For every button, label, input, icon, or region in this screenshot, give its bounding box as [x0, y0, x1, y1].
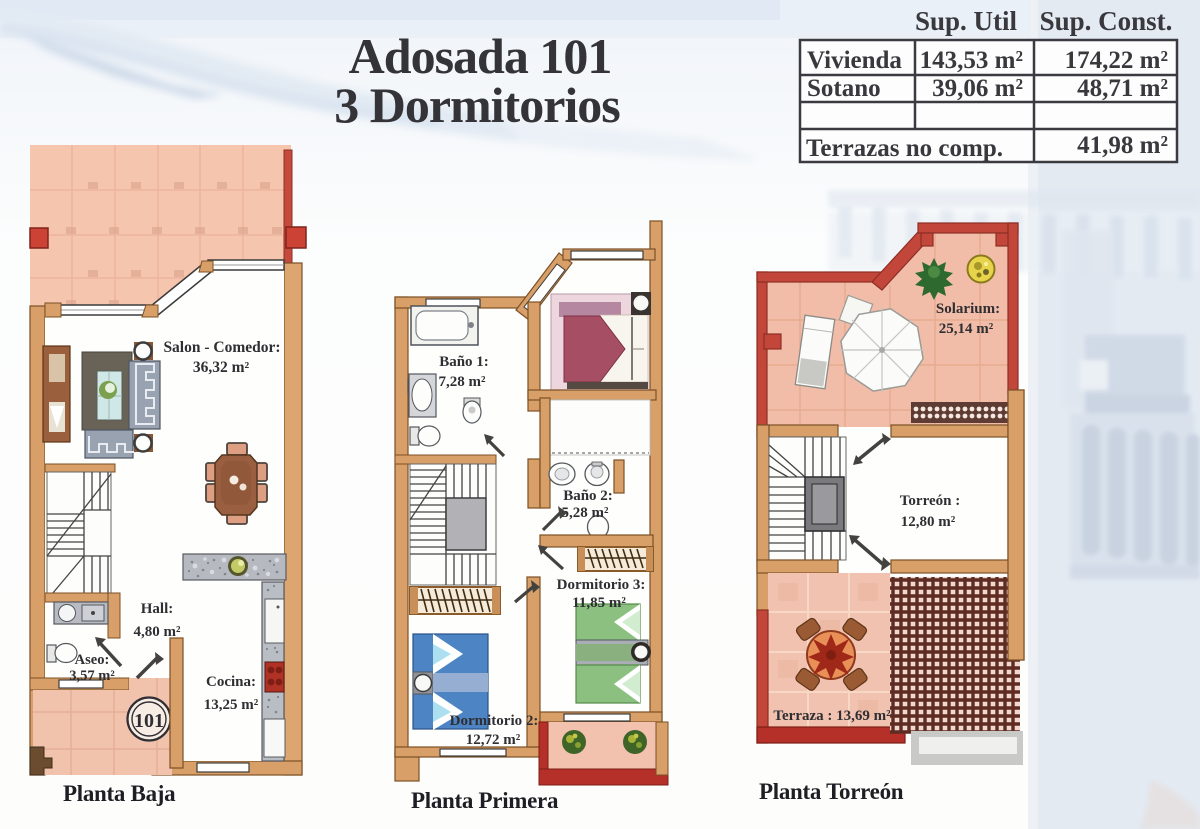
svg-text:Baño 1:: Baño 1: — [439, 354, 489, 370]
svg-text:7,28 m²: 7,28 m² — [439, 374, 486, 390]
svg-text:Terrazas no comp.: Terrazas no comp. — [806, 135, 1003, 162]
svg-text:Dormitorio 2:: Dormitorio 2: — [450, 713, 539, 729]
svg-text:Solarium:: Solarium: — [936, 301, 1000, 317]
svg-text:3,57 m²: 3,57 m² — [69, 668, 114, 684]
svg-text:Sotano: Sotano — [807, 75, 881, 102]
svg-text:12,72 m²: 12,72 m² — [466, 732, 521, 748]
svg-text:36,32 m²: 36,32 m² — [193, 359, 250, 376]
svg-text:Planta Torreón: Planta Torreón — [759, 779, 904, 804]
svg-text:48,71 m²: 48,71 m² — [1077, 75, 1168, 102]
svg-text:174,22 m²: 174,22 m² — [1065, 47, 1168, 74]
svg-text:Hall:: Hall: — [141, 601, 174, 617]
svg-text:Cocina:: Cocina: — [206, 674, 256, 690]
svg-text:3 Dormitorios: 3 Dormitorios — [334, 77, 620, 133]
svg-text:13,25 m²: 13,25 m² — [204, 697, 259, 713]
svg-text:Sup. Util: Sup. Util — [915, 6, 1018, 36]
svg-text:Sup. Const.: Sup. Const. — [1040, 6, 1173, 36]
svg-text:143,53 m²: 143,53 m² — [920, 47, 1023, 74]
svg-text:Terraza : 13,69 m²: Terraza : 13,69 m² — [773, 708, 891, 724]
svg-text:39,06 m²: 39,06 m² — [932, 75, 1023, 102]
svg-text:Planta Baja: Planta Baja — [63, 781, 176, 806]
svg-text:25,14 m²: 25,14 m² — [939, 321, 994, 337]
svg-text:Dormitorio 3:: Dormitorio 3: — [557, 577, 646, 593]
svg-text:101: 101 — [134, 710, 164, 732]
svg-text:Salon - Comedor:: Salon - Comedor: — [163, 339, 280, 356]
svg-text:12,80 m²: 12,80 m² — [901, 514, 956, 530]
svg-text:5,28 m²: 5,28 m² — [562, 505, 609, 521]
svg-text:Baño 2:: Baño 2: — [563, 488, 613, 504]
svg-text:Vivienda: Vivienda — [807, 47, 902, 74]
svg-text:11,85 m²: 11,85 m² — [572, 595, 626, 611]
svg-text:Aseo:: Aseo: — [75, 652, 110, 668]
svg-text:Adosada 101: Adosada 101 — [349, 28, 612, 84]
svg-text:Planta Primera: Planta Primera — [411, 788, 559, 813]
svg-text:41,98 m²: 41,98 m² — [1077, 132, 1168, 159]
svg-text:Torreón :: Torreón : — [900, 493, 960, 509]
